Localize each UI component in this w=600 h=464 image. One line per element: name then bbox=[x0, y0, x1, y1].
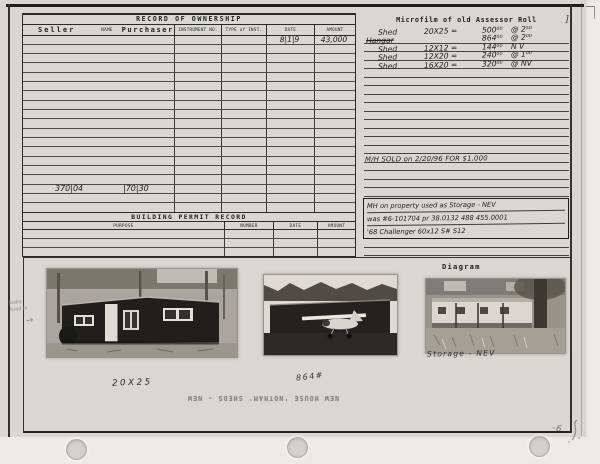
ownership-row bbox=[23, 129, 355, 138]
permit-date-header: DATE bbox=[273, 222, 317, 230]
ownership-row bbox=[23, 101, 355, 110]
corner-scribble bbox=[566, 418, 584, 444]
mh-sold-note: M/H SOLD on 2/20/96 FOR $1,000 bbox=[365, 154, 488, 163]
cabin-size-label: 20X25 bbox=[112, 377, 153, 388]
ownership-row bbox=[23, 54, 355, 63]
ownership-row: 370|04|70|30 bbox=[23, 185, 355, 194]
permit-amount-header: AMOUNT bbox=[317, 222, 355, 230]
photo-airplane-hangar bbox=[263, 274, 398, 356]
card-top-edge bbox=[6, 4, 584, 7]
permit-header: PURPOSE NUMBER DATE AMOUNT bbox=[23, 222, 355, 231]
permit-row bbox=[23, 230, 355, 239]
margin-arrow-icon: → bbox=[25, 315, 34, 326]
punch-hole bbox=[66, 439, 87, 460]
punch-hole bbox=[529, 436, 550, 457]
date-header: DATE bbox=[266, 25, 314, 35]
microfilm-panel: Microfilm of old Assessor Roll ] Shed20X… bbox=[363, 13, 570, 256]
permit-row bbox=[23, 248, 355, 257]
number-header: NUMBER bbox=[224, 222, 273, 230]
permit-row bbox=[23, 239, 355, 248]
photo-storage-trailer bbox=[425, 278, 566, 354]
ownership-row bbox=[23, 73, 355, 82]
permit-title: BUILDING PERMIT RECORD bbox=[23, 213, 355, 222]
photo-cabin-20x25 bbox=[46, 268, 238, 358]
permit-body bbox=[23, 230, 355, 256]
amount-header: AMOUNT bbox=[314, 25, 355, 35]
ownership-row bbox=[23, 194, 355, 203]
scanned-assessor-card: RECORD OF OWNERSHIP Seller NAME Purchase… bbox=[0, 0, 600, 464]
ownership-row bbox=[23, 119, 355, 128]
airplane-photo-image bbox=[264, 275, 397, 355]
photo-area: Diagram bbox=[23, 257, 570, 433]
corner-pen-hook bbox=[586, 6, 595, 19]
ownership-row bbox=[23, 166, 355, 175]
ownership-row bbox=[23, 91, 355, 100]
card-left-edge bbox=[8, 4, 10, 437]
note-box-line: '68 Challenger 60x12 S# S12 bbox=[367, 224, 565, 239]
ownership-row bbox=[23, 45, 355, 54]
name-label: NAME bbox=[101, 27, 112, 32]
ownership-row bbox=[23, 110, 355, 119]
punch-hole bbox=[287, 437, 308, 458]
corner-pencil-mark: -6 bbox=[551, 423, 563, 435]
ownership-title: RECORD OF OWNERSHIP bbox=[23, 15, 355, 25]
bleedthrough-text: NEW HOUSE 'NOTHAM' SHEDS - NEW bbox=[154, 394, 372, 402]
trailer-photo-image bbox=[426, 279, 565, 353]
ownership-row bbox=[23, 147, 355, 156]
diagram-title: Diagram bbox=[442, 262, 481, 271]
mh-storage-note-box: MH on property used as Storage - NEVwas … bbox=[363, 198, 569, 239]
handwritten-value: 43,000 bbox=[315, 34, 353, 45]
purchaser-label: Purchaser bbox=[122, 26, 174, 34]
handwritten-value: 8|1|9 bbox=[267, 34, 312, 45]
microfilm-title: Microfilm of old Assessor Roll bbox=[363, 16, 570, 24]
ownership-row bbox=[23, 82, 355, 91]
type-header: TYPE of INST. bbox=[221, 25, 266, 35]
ownership-body: 8|1|943,000370|04|70|30 bbox=[23, 36, 355, 213]
handwritten-value: |70|30 bbox=[123, 183, 149, 194]
handwritten-value: 370|04 bbox=[55, 183, 83, 194]
card-right-edge bbox=[581, 3, 582, 436]
cabin-photo-image bbox=[47, 269, 237, 357]
seller-label: Seller bbox=[38, 26, 75, 34]
form-right-rule bbox=[570, 5, 572, 433]
ownership-row bbox=[23, 138, 355, 147]
instrument-header: INSTRUMENT NO. bbox=[174, 25, 221, 35]
scan-right-margin bbox=[584, 0, 600, 464]
ownership-table: RECORD OF OWNERSHIP Seller NAME Purchase… bbox=[22, 13, 356, 213]
ownership-row: 8|1|943,000 bbox=[23, 36, 355, 45]
seller-purchaser-header: Seller NAME Purchaser bbox=[23, 25, 174, 35]
ownership-row bbox=[23, 157, 355, 166]
permit-table: BUILDING PERMIT RECORD PURPOSE NUMBER DA… bbox=[22, 212, 356, 257]
trailer-storage-label: Storage - NEV bbox=[427, 348, 496, 358]
purpose-header: PURPOSE bbox=[23, 222, 224, 230]
hangar-area-label: 864# bbox=[296, 370, 325, 382]
ownership-row bbox=[23, 63, 355, 72]
